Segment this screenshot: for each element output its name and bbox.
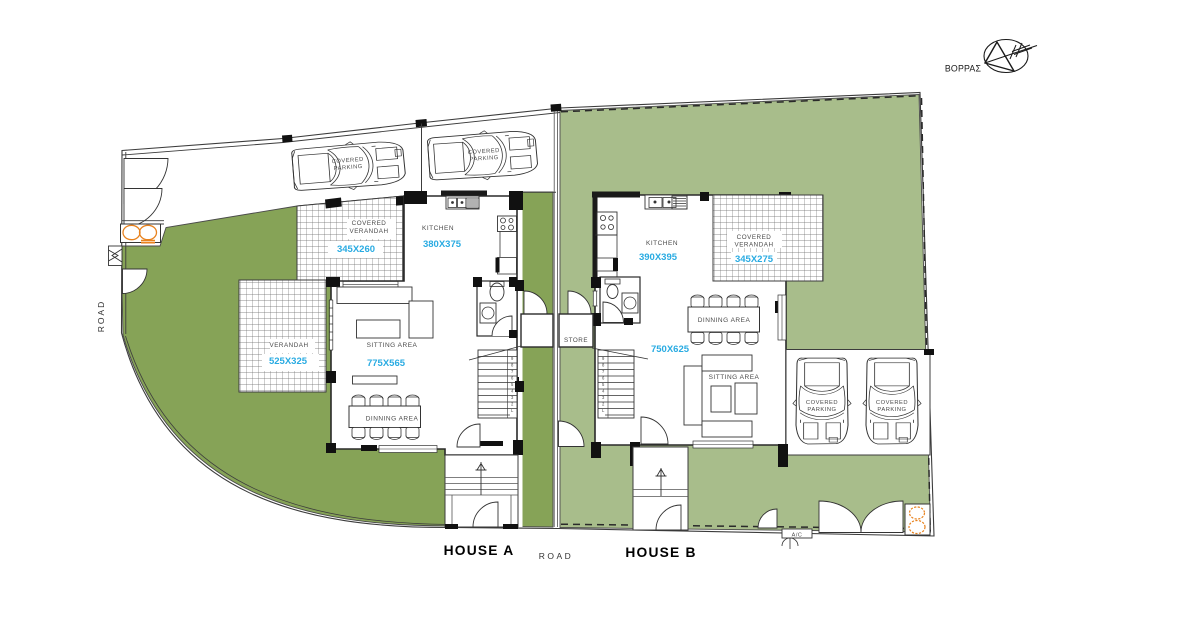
svg-text:STORE: STORE	[564, 337, 588, 344]
svg-text:VERANDAH: VERANDAH	[270, 342, 309, 349]
svg-text:PARKING: PARKING	[877, 407, 906, 413]
svg-text:SITTING AREA: SITTING AREA	[709, 374, 760, 381]
svg-text:525X325: 525X325	[269, 356, 308, 367]
svg-text:COVERED: COVERED	[737, 234, 772, 241]
svg-text:390X395: 390X395	[639, 252, 678, 263]
svg-text:HOUSE A: HOUSE A	[444, 543, 515, 558]
svg-text:DINNING AREA: DINNING AREA	[366, 416, 419, 423]
svg-text:HOUSE B: HOUSE B	[625, 545, 696, 560]
svg-text:ROAD: ROAD	[96, 300, 106, 333]
svg-text:4: 4	[602, 389, 605, 394]
svg-text:SITTING AREA: SITTING AREA	[367, 342, 418, 349]
svg-text:COVERED: COVERED	[876, 400, 908, 406]
svg-text:7: 7	[511, 369, 514, 374]
svg-text:345X260: 345X260	[337, 244, 375, 255]
svg-text:ROAD: ROAD	[539, 551, 574, 561]
svg-text:8: 8	[511, 363, 514, 368]
svg-text:8: 8	[602, 363, 605, 368]
svg-text:2: 2	[511, 402, 514, 407]
svg-text:9: 9	[602, 356, 605, 361]
svg-text:KITCHEN: KITCHEN	[422, 225, 454, 232]
svg-text:775X565: 775X565	[367, 358, 406, 369]
svg-text:6: 6	[511, 376, 514, 381]
svg-text:6: 6	[602, 376, 605, 381]
svg-text:PARKING: PARKING	[807, 407, 836, 413]
svg-text:VERANDAH: VERANDAH	[735, 242, 774, 249]
svg-text:COVERED: COVERED	[806, 400, 838, 406]
svg-text:COVERED: COVERED	[352, 220, 387, 227]
svg-text:DINNING AREA: DINNING AREA	[698, 317, 751, 324]
svg-text:L: L	[511, 408, 514, 413]
svg-text:3: 3	[511, 395, 514, 400]
svg-text:VERANDAH: VERANDAH	[350, 228, 389, 235]
svg-text:ΒΟΡΡΑΣ: ΒΟΡΡΑΣ	[945, 64, 982, 74]
svg-text:5: 5	[602, 382, 605, 387]
svg-text:380X375: 380X375	[423, 239, 462, 250]
svg-text:345X275: 345X275	[735, 254, 774, 265]
svg-text:7: 7	[602, 369, 605, 374]
svg-text:4: 4	[511, 389, 514, 394]
svg-text:L: L	[602, 408, 605, 413]
svg-text:KITCHEN: KITCHEN	[646, 240, 678, 247]
svg-text:A/C: A/C	[792, 533, 803, 539]
svg-text:3: 3	[602, 395, 605, 400]
svg-text:5: 5	[511, 382, 514, 387]
svg-text:750X625: 750X625	[651, 344, 690, 355]
svg-text:9: 9	[511, 356, 514, 361]
svg-text:2: 2	[602, 402, 605, 407]
